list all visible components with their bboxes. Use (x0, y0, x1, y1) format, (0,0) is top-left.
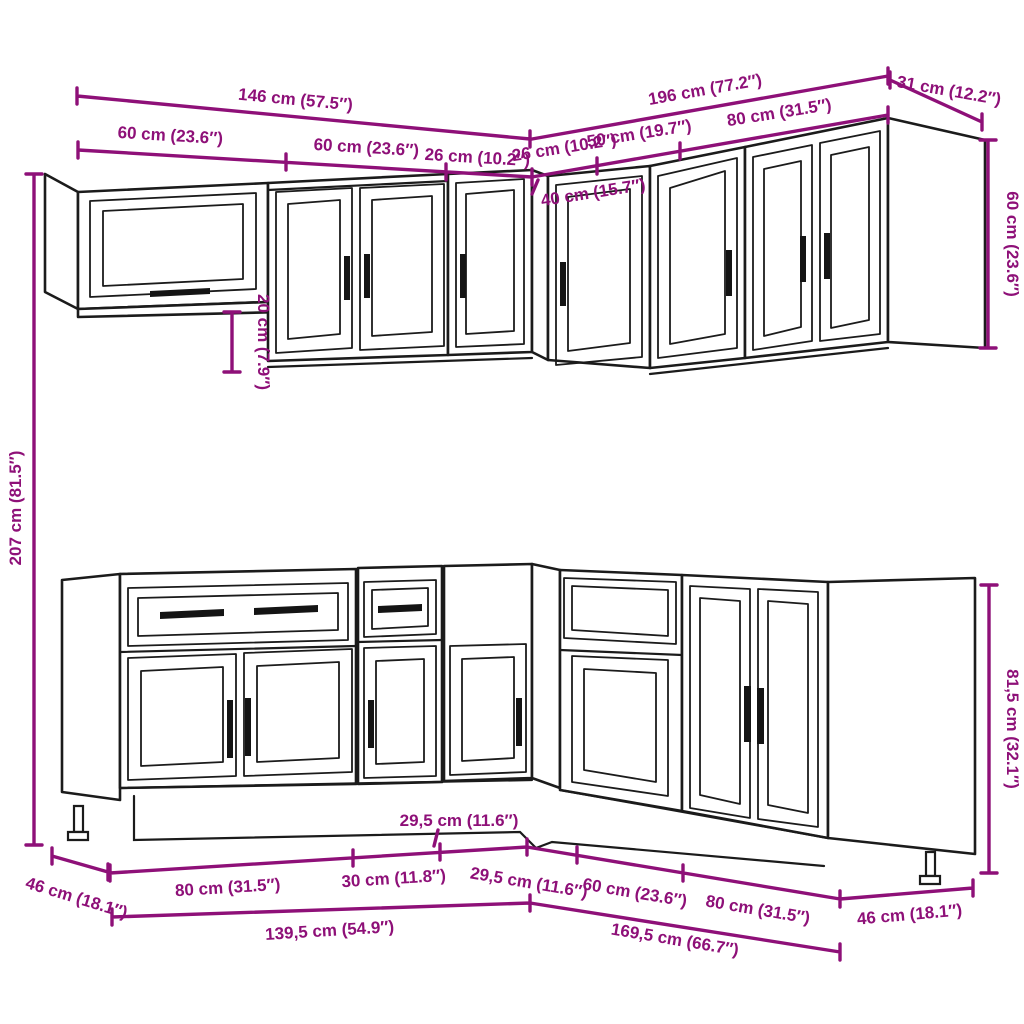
dim-label-60-wall-b: 60 cm (23.6″) (313, 135, 419, 160)
dim-label-80-base-right: 80 cm (31.5″) (704, 892, 811, 928)
cabinet-front (560, 570, 682, 811)
two-door-wall-cabinet-right (745, 118, 888, 358)
door-handle (757, 688, 764, 744)
cabinet-leg-right (920, 852, 940, 884)
door-handle (726, 250, 732, 296)
cabinet-front (358, 566, 442, 784)
dim-line-base-height (981, 585, 997, 873)
glass-door-wall-cabinet (45, 174, 284, 317)
corner-base-cabinet (444, 564, 560, 788)
dim-label-30: 30 cm (11.8″) (341, 866, 447, 891)
single-door-wall-cabinet (650, 147, 745, 368)
dim-label-60-wall-a: 60 cm (23.6″) (117, 123, 223, 148)
dim-tick-29-5 (434, 830, 438, 846)
dim-line-drop-20 (224, 312, 240, 372)
dim-line-total-height (26, 174, 42, 845)
corner-return (532, 564, 560, 788)
dim-line-depth-left (52, 848, 108, 880)
dim-label-139-5: 139,5 cm (54.9″) (265, 917, 395, 944)
two-door-wall-cabinet (268, 174, 448, 361)
drawer-single-door-base-cabinet (358, 566, 442, 784)
cabinet-front (682, 575, 828, 838)
dim-label-196: 196 cm (77.2″) (647, 70, 763, 109)
door-handle (800, 236, 806, 282)
door-handle (460, 254, 466, 298)
dim-label-60-base: 60 cm (23.6″) (581, 875, 688, 911)
wall-end-panel (888, 118, 985, 348)
cabinet-front (444, 564, 532, 781)
dim-label-depth-left: 46 cm (18.1″) (23, 873, 129, 922)
dim-label-base-height: 81,5 cm (32.1″) (1003, 669, 1022, 789)
dim-label-146: 146 cm (57.5″) (237, 85, 353, 115)
cabinet-leg-left (68, 806, 88, 840)
door-handle (560, 262, 566, 306)
dim-label-31: 31 cm (12.2″) (895, 72, 1002, 109)
dim-label-depth-right: 46 cm (18.1″) (856, 900, 963, 928)
kitchen-cabinet-dimension-diagram: 146 cm (57.5″) 60 cm (23.6″) 60 cm (23.6… (0, 0, 1024, 1024)
door-handle (227, 700, 233, 758)
diagram-canvas: 146 cm (57.5″) 60 cm (23.6″) 60 cm (23.6… (0, 0, 1024, 1024)
open-top-base-cabinet (560, 570, 682, 811)
leg-post (74, 806, 83, 832)
door-handle (245, 698, 251, 756)
cabinet-front (120, 569, 356, 788)
door-handle (824, 233, 830, 279)
door-handle (344, 256, 350, 300)
leg-foot (920, 876, 940, 884)
door-handle (368, 700, 374, 748)
dim-label-80-base-left: 80 cm (31.5″) (174, 875, 280, 900)
dim-label-total-height: 207 cm (81.5″) (6, 451, 25, 566)
two-door-base-cabinet (682, 575, 828, 838)
drawer-two-door-base-cabinet (120, 569, 356, 788)
cabinet-side-panel (45, 174, 78, 309)
dim-label-29-5-a: 29,5 cm (11.6″) (400, 811, 519, 830)
base-cabinet-row (62, 564, 975, 884)
door-handle (364, 254, 370, 298)
leg-foot (68, 832, 88, 840)
dim-line-base-left-units (110, 839, 527, 881)
base-end-side-panel (828, 578, 975, 854)
base-side-panel (62, 574, 120, 800)
dim-label-wall-height: 60 cm (23.6″) (1003, 191, 1022, 296)
door-handle (516, 698, 522, 746)
leg-post (926, 852, 935, 876)
dim-label-drop-20: 20 cm (7.9″) (254, 294, 273, 390)
dim-line-depth-right (840, 880, 973, 899)
door-handle (744, 686, 751, 742)
narrow-wall-cabinet (448, 170, 532, 355)
